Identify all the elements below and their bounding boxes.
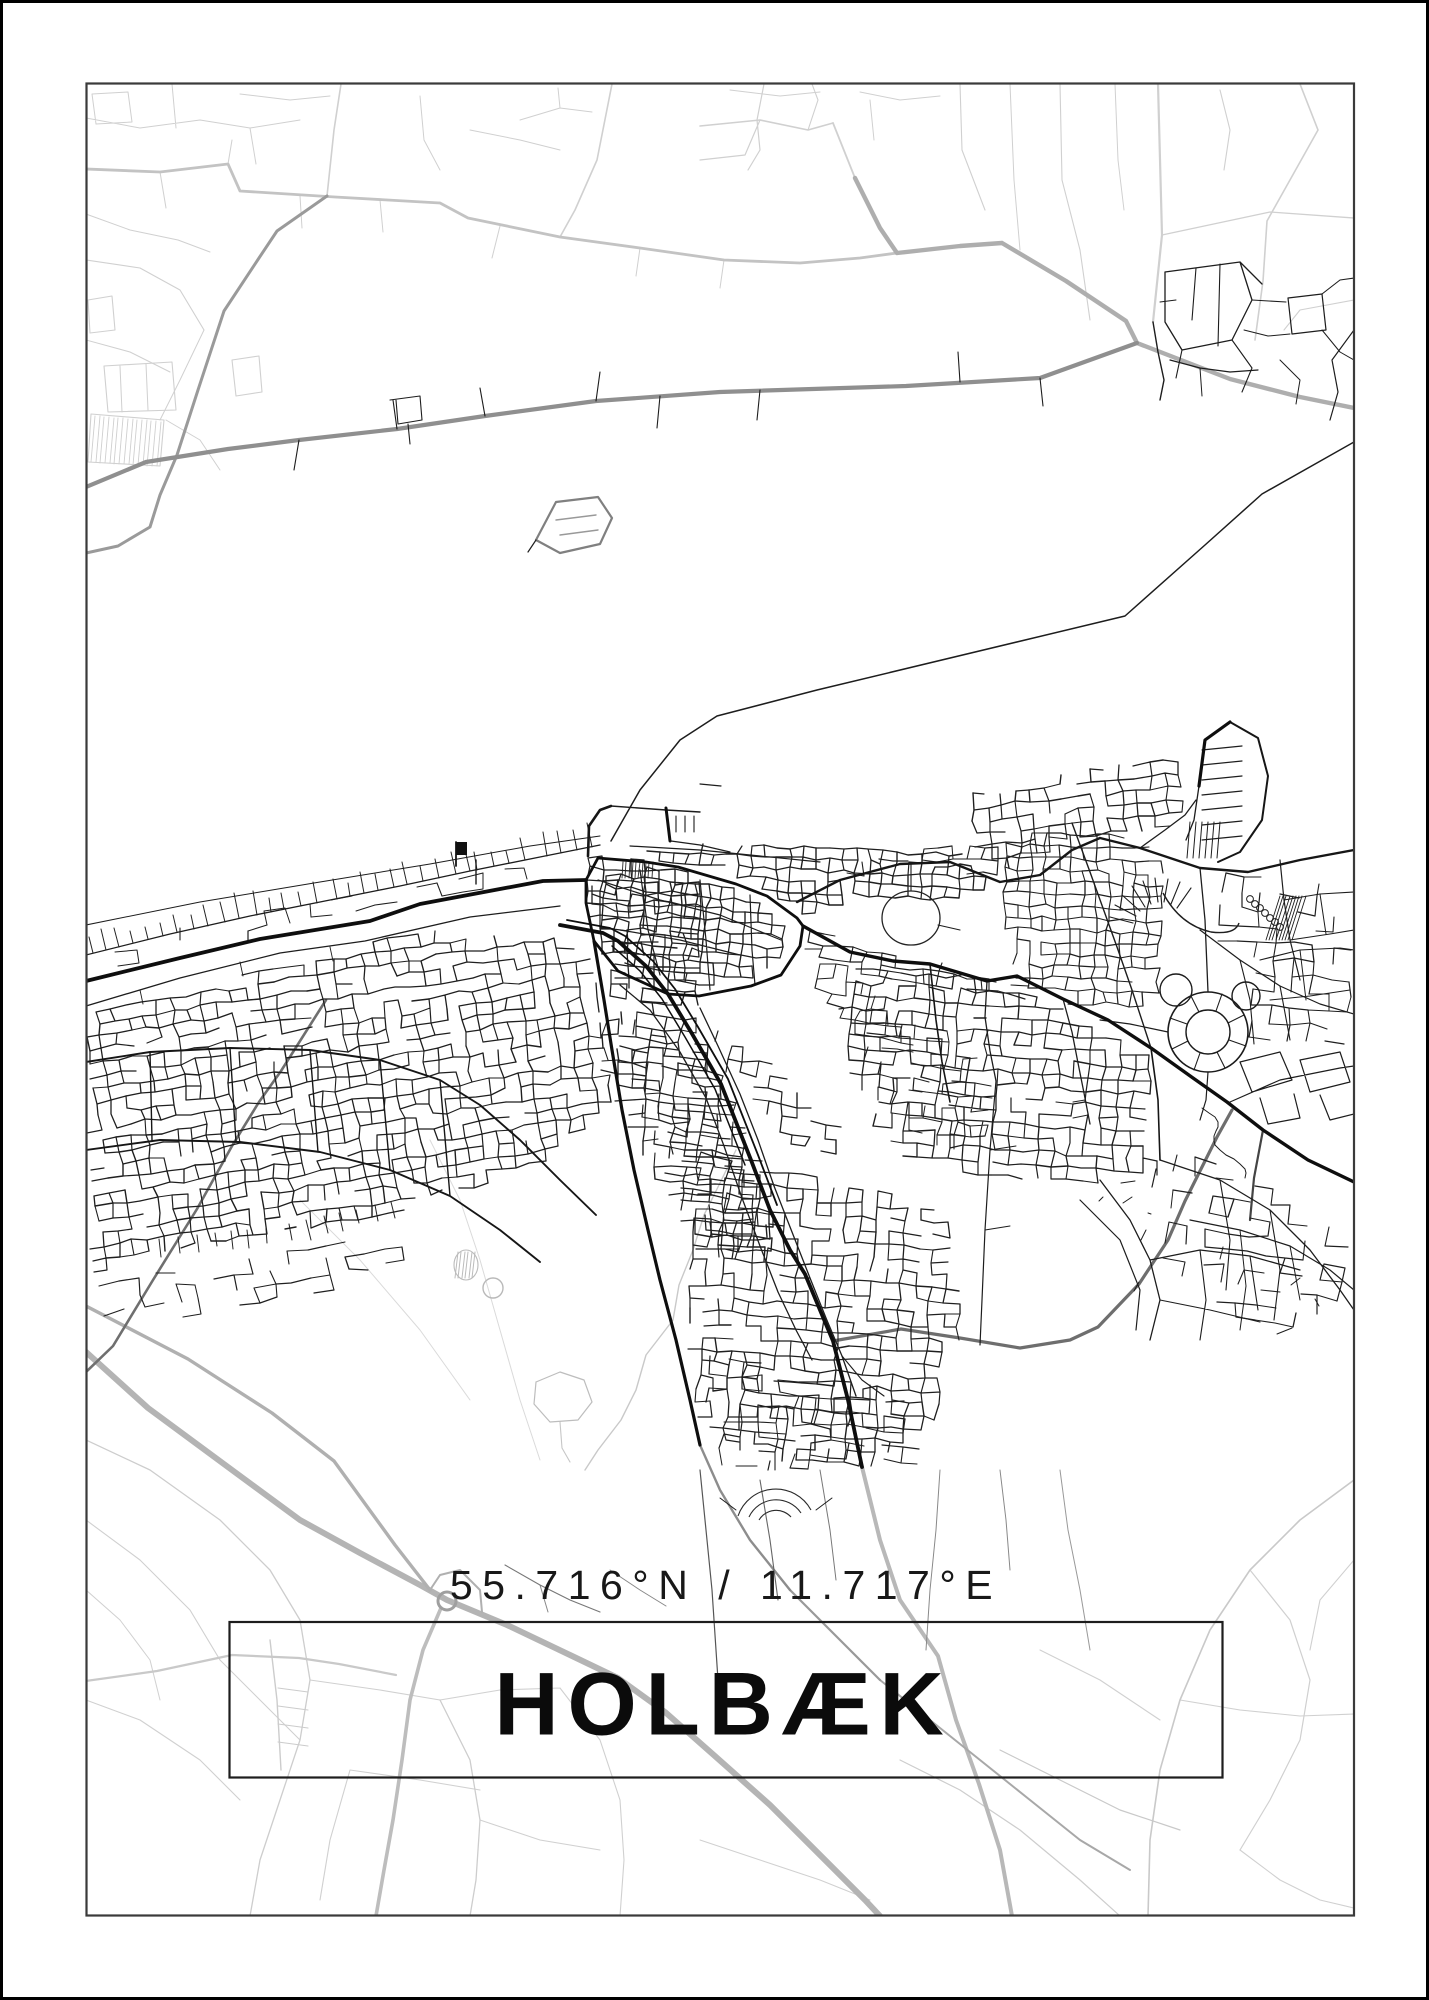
svg-text:55.716°N / 11.717°E: 55.716°N / 11.717°E bbox=[450, 1562, 1002, 1608]
svg-text:HOLBÆK: HOLBÆK bbox=[494, 1654, 952, 1754]
